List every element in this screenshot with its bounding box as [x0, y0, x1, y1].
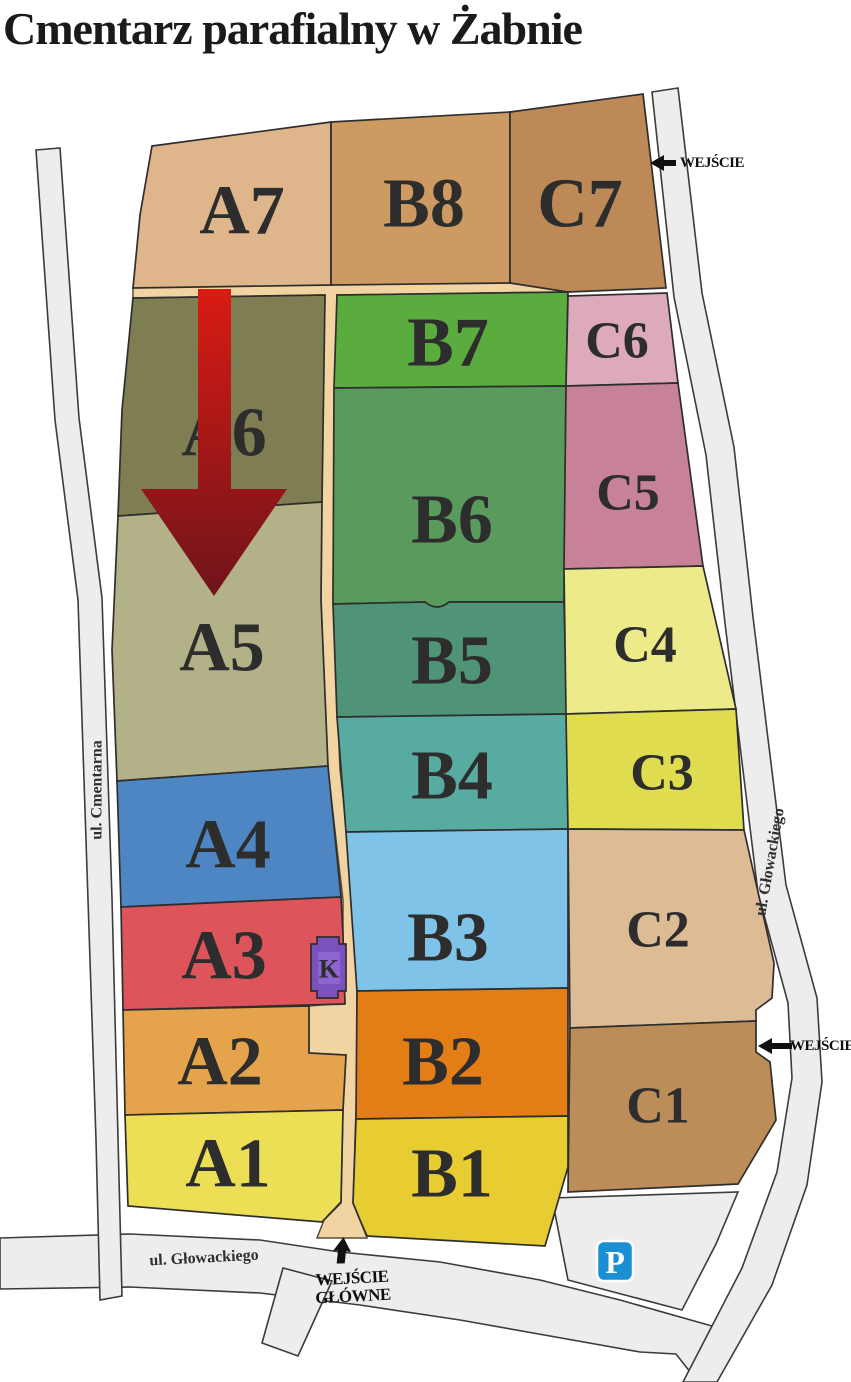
section-b2-label: B2 [402, 1024, 484, 1101]
street-cmentarna-label: ul. Cmentarna [89, 740, 106, 840]
section-b6-label: B6 [411, 482, 493, 559]
building-k: K [311, 937, 346, 998]
section-c5-label: C5 [596, 465, 660, 522]
section-b5-label: B5 [411, 623, 493, 700]
section-a4-label: A4 [185, 807, 271, 884]
section-b3-label: B3 [407, 900, 489, 977]
section-b8-label: B8 [383, 166, 465, 243]
road-left [36, 148, 122, 1300]
section-b7-label: B7 [407, 305, 489, 382]
section-a7-label: A7 [199, 173, 285, 250]
parking-sign-label: P [605, 1244, 625, 1280]
section-a2-label: A2 [177, 1024, 263, 1101]
section-a1-label: A1 [185, 1126, 271, 1203]
section-b4-label: B4 [411, 738, 493, 815]
cemetery-map: A7 B8 C7 A6 B7 C6 B6 C5 A5 B5 C4 B4 C3 A… [0, 0, 851, 1382]
section-b1-label: B1 [411, 1136, 493, 1213]
cemetery-map-page: Cmentarz parafialny w Żabnie [0, 0, 851, 1382]
section-c4-label: C4 [613, 617, 677, 674]
section-c1-label: C1 [626, 1078, 690, 1135]
main-entrance-label-line2: GŁÓWNE [315, 1285, 391, 1308]
building-k-label: K [319, 955, 340, 984]
parking-sign: P [597, 1241, 633, 1281]
section-a3-label: A3 [181, 918, 267, 995]
entrance-top-right-label: WEJŚCIE [680, 154, 745, 171]
section-c2-label: C2 [626, 902, 690, 959]
section-c6-label: C6 [585, 313, 649, 370]
entrance-mid-right-label: WEJŚCIE [790, 1037, 851, 1054]
section-c7-label: C7 [537, 166, 623, 243]
entrance-mid-right-arrow-icon [758, 1038, 792, 1054]
section-a5-label: A5 [179, 610, 265, 687]
section-c3-label: C3 [630, 745, 694, 802]
